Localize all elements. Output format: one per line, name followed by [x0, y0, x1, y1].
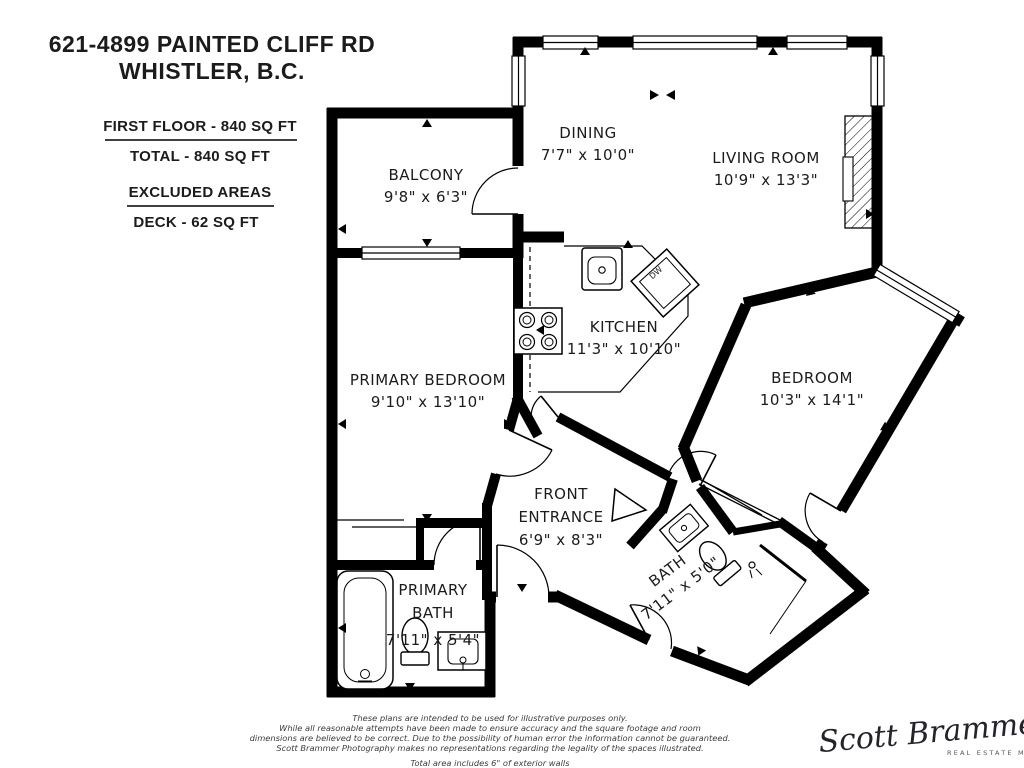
- svg-text:621-4899 PAINTED CLIFF RD: 621-4899 PAINTED CLIFF RD: [49, 31, 375, 57]
- svg-text:Scott Brammer Photography make: Scott Brammer Photography makes no repre…: [276, 743, 703, 753]
- floorplan-page: DW: [0, 0, 1024, 768]
- svg-text:7'7" x 10'0": 7'7" x 10'0": [541, 146, 635, 164]
- svg-text:DECK - 62 SQ FT: DECK - 62 SQ FT: [133, 214, 258, 231]
- svg-text:6'9" x 8'3": 6'9" x 8'3": [519, 531, 603, 549]
- svg-text:ENTRANCE: ENTRANCE: [518, 508, 603, 526]
- svg-text:BATH: BATH: [412, 604, 454, 622]
- svg-text:10'3" x 14'1": 10'3" x 14'1": [760, 391, 864, 409]
- svg-text:FRONT: FRONT: [534, 485, 588, 503]
- svg-text:PRIMARY BEDROOM: PRIMARY BEDROOM: [350, 371, 506, 389]
- svg-text:BEDROOM: BEDROOM: [771, 369, 853, 387]
- closet-slider: [336, 516, 419, 531]
- window: [543, 36, 598, 49]
- room-label-dining: DINING 7'7" x 10'0": [541, 124, 635, 164]
- area-summary: FIRST FLOOR - 840 SQ FT TOTAL - 840 SQ F…: [103, 118, 297, 231]
- svg-text:EXCLUDED AREAS: EXCLUDED AREAS: [129, 184, 272, 201]
- svg-text:WHISTLER, B.C.: WHISTLER, B.C.: [119, 58, 305, 84]
- page-title: 621-4899 PAINTED CLIFF RD WHISTLER, B.C.: [49, 31, 375, 84]
- room-label-kitchen: KITCHEN 11'3" x 10'10": [567, 318, 681, 358]
- svg-text:LIVING ROOM: LIVING ROOM: [712, 149, 820, 167]
- svg-text:dimensions are believed to be: dimensions are believed to be correct. D…: [250, 733, 731, 743]
- logo-tagline: REAL ESTATE MEDIA: [947, 749, 1024, 757]
- svg-text:BALCONY: BALCONY: [388, 166, 463, 184]
- svg-text:Total area includes 6" of exte: Total area includes 6" of exterior walls: [410, 758, 570, 768]
- svg-text:DINING: DINING: [559, 124, 616, 142]
- door-arc: [472, 168, 518, 214]
- floorplan-svg: DW: [0, 0, 1024, 768]
- svg-text:TOTAL - 840 SQ FT: TOTAL - 840 SQ FT: [130, 148, 270, 165]
- window: [873, 264, 959, 322]
- svg-text:9'10" x 13'10": 9'10" x 13'10": [371, 393, 485, 411]
- room-label-front-entrance: FRONT ENTRANCE 6'9" x 8'3": [518, 485, 603, 549]
- svg-text:7'11" x 5'4": 7'11" x 5'4": [386, 631, 480, 649]
- svg-text:9'8" x 6'3": 9'8" x 6'3": [384, 188, 468, 206]
- window: [633, 36, 757, 49]
- svg-text:While all reasonable attempts: While all reasonable attempts have been …: [279, 723, 701, 733]
- room-label-primary-bath: PRIMARY BATH 7'11" x 5'4": [386, 581, 480, 649]
- svg-text:KITCHEN: KITCHEN: [590, 318, 659, 336]
- window: [787, 36, 847, 49]
- logo: Scott Brammer REAL ESTATE MEDIA: [817, 705, 1024, 760]
- window: [512, 56, 525, 106]
- room-label-living: LIVING ROOM 10'9" x 13'3": [712, 149, 820, 189]
- disclaimer: These plans are intended to be used for …: [250, 713, 731, 768]
- svg-text:These plans are intended to be: These plans are intended to be used for …: [352, 713, 627, 723]
- room-label-primary-bedroom: PRIMARY BEDROOM 9'10" x 13'10": [350, 371, 506, 411]
- entry-marker: [612, 489, 646, 521]
- door-arc: [496, 430, 552, 476]
- dishwasher-icon: DW: [631, 249, 699, 317]
- window: [362, 247, 460, 259]
- kitchen-sink-icon: [582, 248, 622, 290]
- room-label-bedroom: BEDROOM 10'3" x 14'1": [760, 369, 864, 409]
- svg-text:10'9" x 13'3": 10'9" x 13'3": [714, 171, 818, 189]
- room-label-balcony: BALCONY 9'8" x 6'3": [384, 166, 468, 206]
- svg-text:FIRST FLOOR - 840 SQ FT: FIRST FLOOR - 840 SQ FT: [103, 118, 297, 135]
- svg-text:PRIMARY: PRIMARY: [398, 581, 468, 599]
- window: [871, 56, 884, 106]
- svg-text:11'3" x 10'10": 11'3" x 10'10": [567, 340, 681, 358]
